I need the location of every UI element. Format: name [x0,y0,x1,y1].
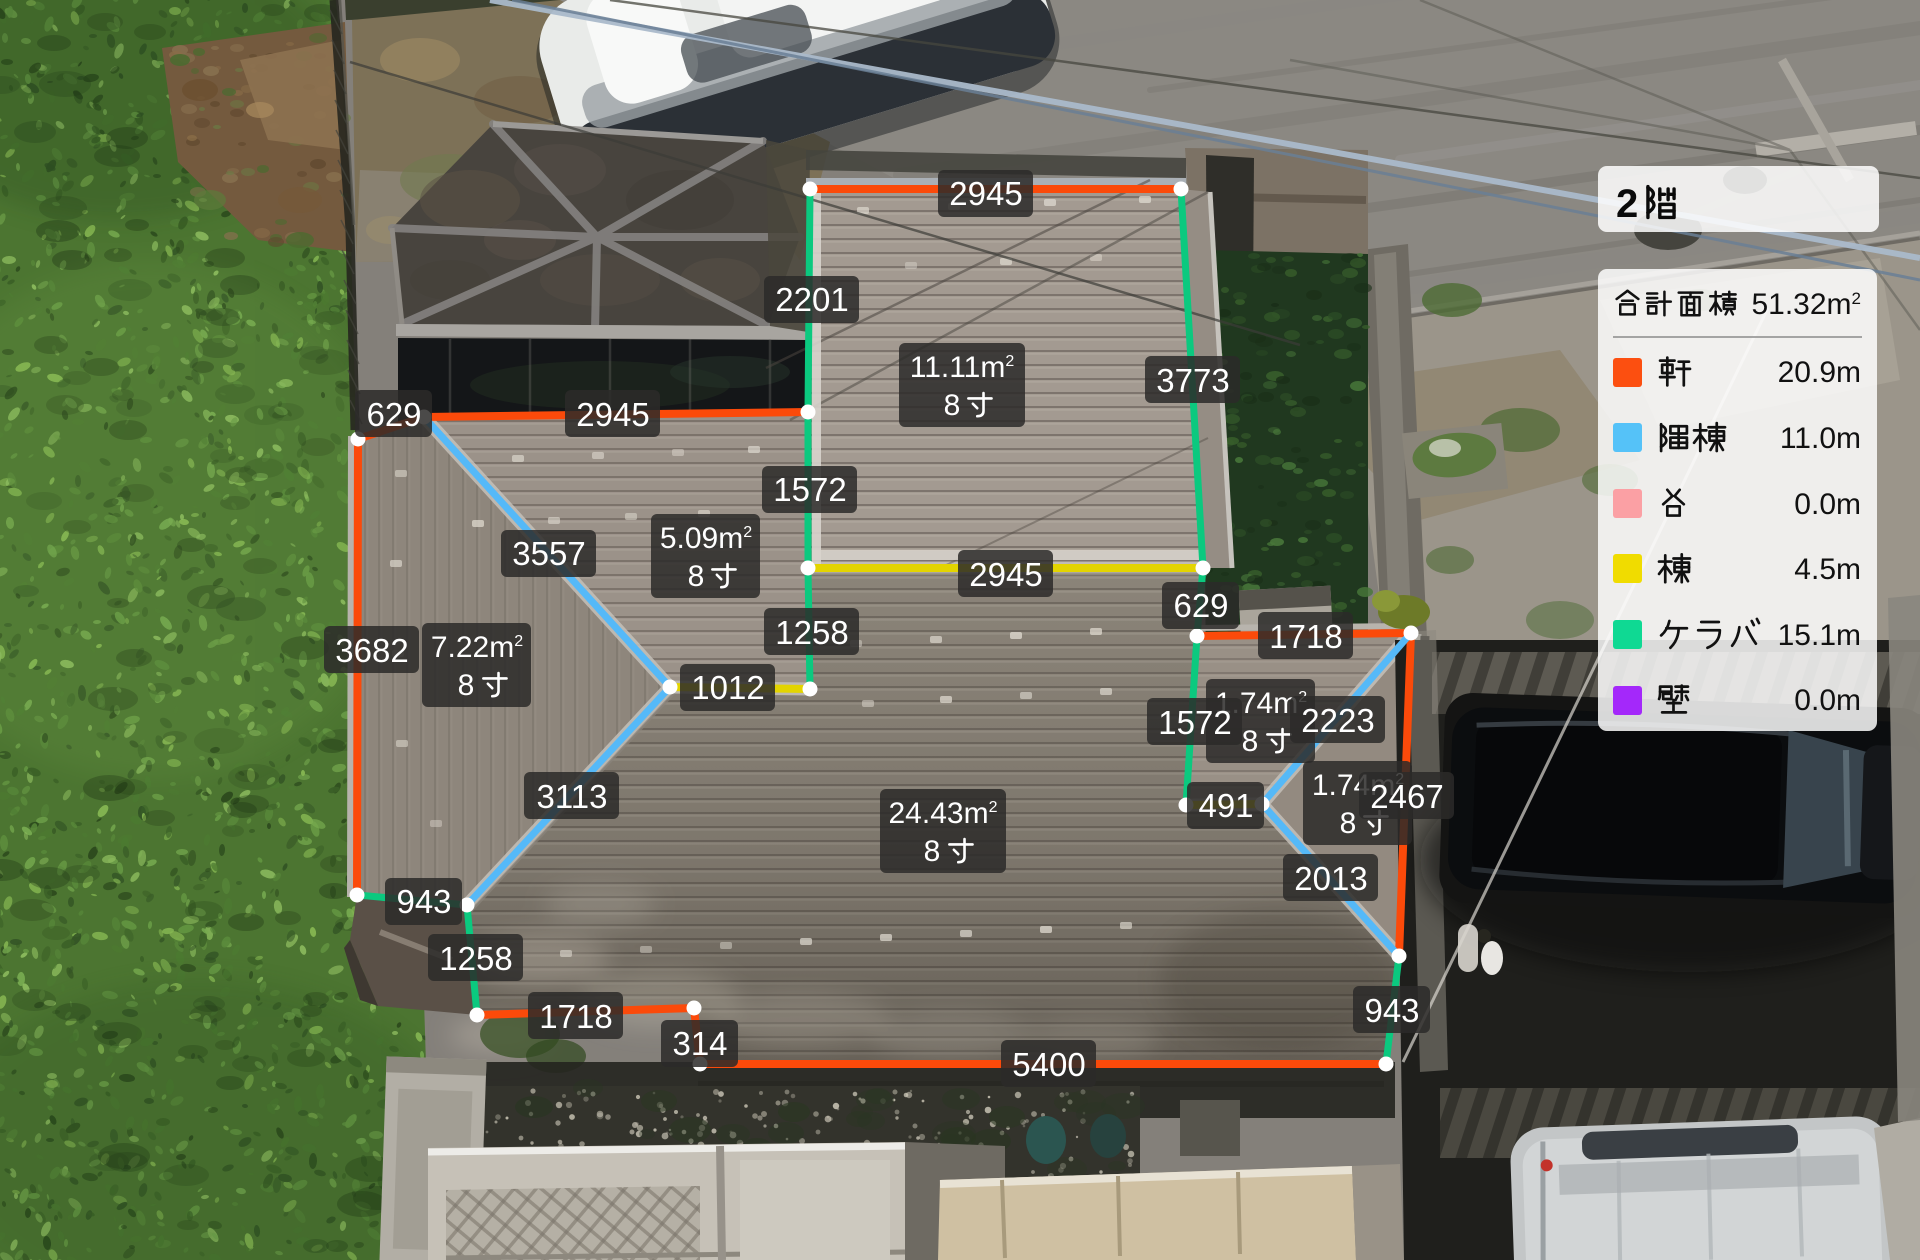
svg-text:314: 314 [672,1025,727,1062]
svg-text:943: 943 [1364,992,1419,1029]
svg-text:2945: 2945 [576,396,649,433]
svg-text:3557: 3557 [512,535,585,572]
svg-text:20.9m: 20.9m [1778,356,1861,389]
svg-text:3113: 3113 [537,778,608,815]
svg-text:1718: 1718 [1269,618,1342,655]
svg-text:2945: 2945 [969,556,1042,593]
svg-text:3682: 3682 [335,632,408,669]
svg-text:2013: 2013 [1294,860,1367,897]
svg-text:629: 629 [366,396,421,433]
svg-text:1012: 1012 [691,669,764,706]
svg-text:15.1m: 15.1m [1778,619,1861,652]
svg-text:8: 8 [1242,725,1259,758]
svg-text:2945: 2945 [949,175,1022,212]
svg-text:8: 8 [944,389,961,422]
svg-text:7.22m2: 7.22m2 [431,631,523,664]
svg-text:2201: 2201 [775,281,848,318]
svg-text:8: 8 [924,835,941,868]
svg-text:4.5m: 4.5m [1794,553,1861,586]
svg-text:2467: 2467 [1370,778,1443,815]
svg-text:3773: 3773 [1156,362,1229,399]
svg-text:5.09m2: 5.09m2 [660,522,752,555]
svg-text:491: 491 [1198,787,1253,824]
svg-text:5400: 5400 [1012,1046,1085,1083]
svg-text:1258: 1258 [439,940,512,977]
svg-text:1572: 1572 [1158,704,1231,741]
svg-text:2223: 2223 [1301,702,1374,739]
svg-text:11.11m2: 11.11m2 [910,351,1015,384]
svg-text:0.0m: 0.0m [1794,488,1861,521]
svg-text:2: 2 [1616,182,1638,226]
svg-text:8: 8 [458,669,475,702]
svg-text:11.0m: 11.0m [1780,422,1861,455]
svg-text:0.0m: 0.0m [1794,684,1861,717]
svg-text:629: 629 [1173,587,1228,624]
svg-text:1258: 1258 [775,614,848,651]
svg-text:1718: 1718 [539,998,612,1035]
svg-text:51.32m2: 51.32m2 [1751,288,1861,321]
svg-text:8: 8 [688,560,705,593]
svg-text:943: 943 [396,883,451,920]
svg-text:1572: 1572 [773,471,846,508]
svg-text:24.43m2: 24.43m2 [889,797,998,830]
svg-text:8: 8 [1340,807,1357,840]
